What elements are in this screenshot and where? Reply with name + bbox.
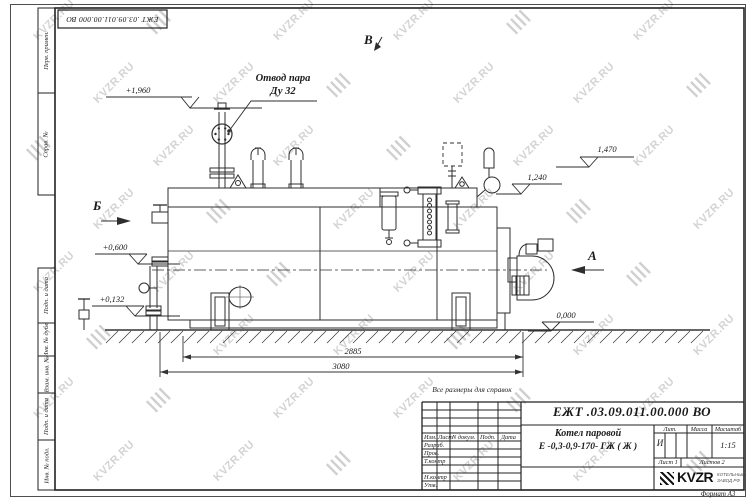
margin-label: Подп. и дата [43,398,50,435]
margin-cell-inv-podl: Инв. № подл. [38,440,55,490]
dimension-3080: 3080 [333,362,350,371]
margin-cell-inv-dubl: Инв. № дубл. [38,323,55,356]
elevation-1240: 1,240 [527,173,546,182]
elevation-0600: +0,600 [103,243,128,252]
kvzr-logo-sub1: КОТЕЛЬНЫЙ [717,472,745,477]
aux-column [446,201,459,233]
steam-outlet-leader [227,101,317,133]
ground-hatch [106,331,703,343]
margin-label: Перв. примен. [43,31,50,70]
titleblock-col-ndoc: N докум. [452,435,475,441]
elevation-marks [92,97,634,331]
margin-label: Справ. № [43,131,50,157]
margin-label: Взам. инв. № [43,357,50,393]
dimension-2885: 2885 [345,347,362,356]
lifting-lugs [230,175,469,188]
elevation-0000: 0,000 [556,311,575,320]
elevation-1470: 1,470 [597,145,616,154]
margin-cell-sprav-no: Справ. № [38,93,55,195]
steam-outlet-valve [210,103,234,188]
burner [497,228,554,330]
titleblock-mass-label: Масса [691,427,708,433]
safety-valves [251,148,303,188]
titleblock-scale-label: Масштаб [715,427,741,433]
steam-outlet-label-line1: Отвод пара [256,74,311,85]
view-label-a: А [588,249,597,262]
kvzr-logo-sub2: ЗАВОД.РФ [717,478,740,483]
view-label-v: В [364,33,373,46]
titleblock-row-tkontr: Т.контр [424,459,445,465]
margin-label: Подп. и дата [43,277,50,314]
titleblock-col-data: Дата [501,435,516,441]
margin-cell-vzam-inv: Взам. инв. № [38,356,55,393]
top-reference-stamp: ЕЖТ .03.09.011.00.000 ВО [58,10,167,28]
titleblock-row-utv: Утв. [424,483,437,489]
titleblock-col-izm: Изм. [424,435,436,441]
top-stamp-number: ЕЖТ .03.09.011.00.000 ВО [66,15,158,24]
kvzr-logo-icon [660,472,674,485]
titleblock-col-list: Лист [438,435,453,441]
titleblock-doc-number: ЕЖТ .03.09.011.00.000 ВО [553,405,711,418]
margin-label: Инв. № подл. [43,447,50,483]
kvzr-logo-text: KVZR [677,469,713,485]
feed-cylinder [380,192,398,245]
reference-note: Все размеры для справок [432,386,512,394]
water-level-gauge [404,187,441,247]
margin-label: Инв. № дубл. [43,322,50,357]
boiler-shell [152,188,547,330]
margin-cell-perv-primen: Перв. примен. [38,8,55,93]
titleblock-row-prov: Пров. [424,451,439,457]
titleblock-row-nkontr: Н.контр [424,475,447,481]
titleblock-lit-value: И [657,439,664,448]
elevation-0132: +0,132 [100,295,125,304]
pressure-gauge [477,148,500,197]
titleblock-product-name: Котел паровой [555,429,621,439]
margin-cell-podp-data-2: Подп. и дата [38,393,55,440]
margin-cell-podp-data-1: Подп. и дата [38,268,55,323]
titleblock-scale-value: 1:15 [720,441,736,450]
elevation-1960: +1,960 [126,86,151,95]
steam-outlet-label-line2: Ду 32 [270,87,295,98]
ground-line [105,330,710,343]
titleblock-sheet: Лист 1 [658,460,677,466]
titleblock-row-razrab: Разраб. [424,443,444,449]
view-arrows [101,37,604,274]
titleblock-lit-label: Лит. [663,427,676,433]
titleblock-sheets: Листов 2 [699,460,724,466]
format-note: Формат А3 [701,491,736,498]
titleblock-col-podp: Подп. [480,435,496,441]
titleblock-product-model: Е -0,3-0,9-170- ГЖ ( Ж ) [539,443,637,453]
view-label-b: Б [93,199,101,212]
blueprint-page: KVZR.RUKVZR.RUKVZR.RUKVZR.RUKVZR.RUKVZR.… [0,0,750,500]
left-fittings [78,205,168,330]
